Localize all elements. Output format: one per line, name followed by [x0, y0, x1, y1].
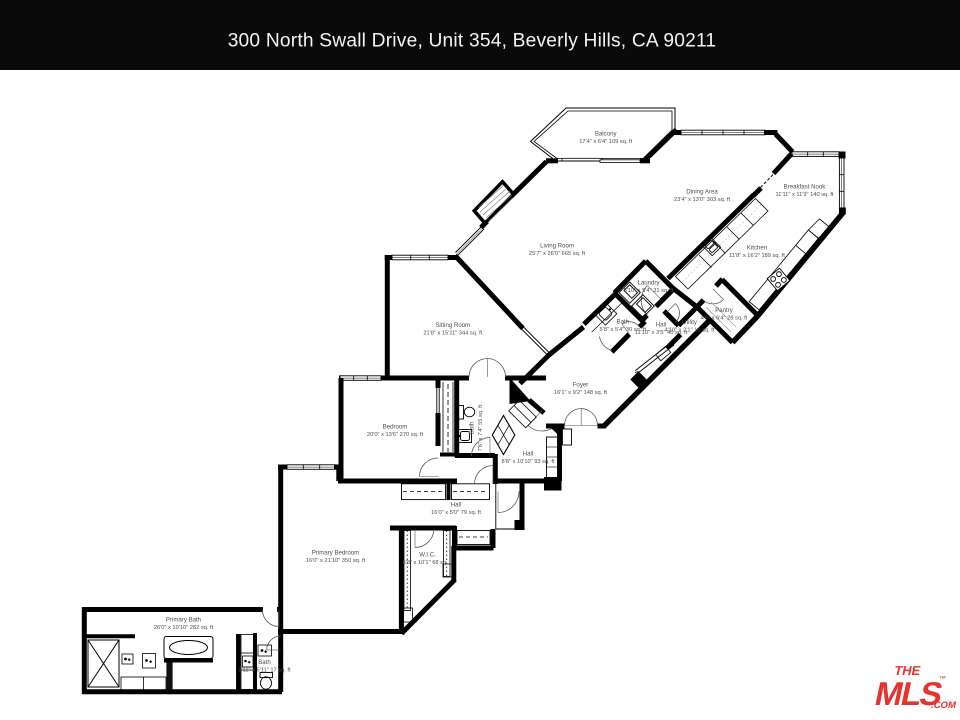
svg-text:Sitting Room: Sitting Room: [435, 322, 470, 329]
svg-text:™: ™: [938, 676, 946, 683]
svg-text:16'0" x 5'0" 79 sq. ft: 16'0" x 5'0" 79 sq. ft: [431, 510, 481, 516]
svg-text:4'6" x 6'4" 28 sq. ft: 4'6" x 6'4" 28 sq. ft: [701, 316, 748, 322]
svg-text:4'10" x 2'1" 10 sq. ft: 4'10" x 2'1" 10 sq. ft: [665, 328, 715, 334]
svg-text:25'7" x 26'0" 665 sq. ft: 25'7" x 26'0" 665 sq. ft: [529, 251, 586, 257]
svg-text:Dining Area: Dining Area: [686, 189, 718, 196]
svg-text:5'10" x 5'4" 31 sq. ft: 5'10" x 5'4" 31 sq. ft: [624, 288, 674, 294]
svg-text:16'0" x 21'10" 350 sq. ft: 16'0" x 21'10" 350 sq. ft: [306, 558, 366, 564]
svg-text:Bath: Bath: [617, 319, 630, 326]
svg-text:Hall: Hall: [451, 502, 462, 509]
svg-text:16'1" x 9'2" 148 sq. ft: 16'1" x 9'2" 148 sq. ft: [554, 390, 607, 396]
svg-text:Bath: Bath: [258, 659, 271, 666]
svg-text:11'8" x 16'2" 189 sq. ft: 11'8" x 16'2" 189 sq. ft: [729, 253, 785, 259]
svg-text:26'0" x 10'10" 282 sq. ft: 26'0" x 10'10" 282 sq. ft: [154, 625, 214, 631]
svg-text:20'0" x 13'6" 270 sq. ft: 20'0" x 13'6" 270 sq. ft: [367, 432, 424, 438]
svg-text:Bedroom: Bedroom: [383, 424, 408, 431]
svg-text:Utility: Utility: [682, 319, 698, 326]
svg-text:Primary Bath: Primary Bath: [166, 616, 201, 623]
svg-text:300 North Swall Drive, Unit 35: 300 North Swall Drive, Unit 354, Beverly…: [228, 30, 717, 51]
svg-text:Foyer: Foyer: [573, 382, 589, 389]
svg-text:Bath: Bath: [469, 422, 476, 435]
svg-text:W.I.C.: W.I.C.: [419, 552, 436, 559]
svg-text:2'11" x 5'11" 17 sq. ft: 2'11" x 5'11" 17 sq. ft: [238, 668, 291, 674]
svg-text:23'4" x 13'0" 303 sq. ft: 23'4" x 13'0" 303 sq. ft: [674, 197, 731, 203]
svg-text:Pantry: Pantry: [715, 307, 734, 314]
svg-text:Hall: Hall: [523, 451, 534, 458]
svg-text:11'11" x 11'9" 140 sq. ft: 11'11" x 11'9" 140 sq. ft: [775, 192, 833, 198]
svg-text:Laundry: Laundry: [637, 280, 660, 287]
svg-text:Breakfast Nook: Breakfast Nook: [784, 184, 827, 191]
svg-text:6'8" x 10'1" 68 sq. ft: 6'8" x 10'1" 68 sq. ft: [403, 560, 453, 566]
svg-text:17'4" x 6'4" 109 sq. ft: 17'4" x 6'4" 109 sq. ft: [579, 139, 632, 145]
svg-text:.COM: .COM: [930, 700, 957, 711]
svg-text:Kitchen: Kitchen: [747, 245, 767, 252]
svg-text:Balcony: Balcony: [595, 131, 618, 138]
svg-text:Primary Bedroom: Primary Bedroom: [312, 550, 359, 557]
svg-text:8'8" x 10'10" 93 sq. ft: 8'8" x 10'10" 93 sq. ft: [501, 459, 554, 465]
svg-text:21'8" x 15'11" 344 sq. ft: 21'8" x 15'11" 344 sq. ft: [423, 331, 482, 337]
svg-text:Living Room: Living Room: [540, 242, 574, 249]
svg-text:7'6" x 7'4" 55 sq. ft: 7'6" x 7'4" 55 sq. ft: [478, 404, 484, 451]
